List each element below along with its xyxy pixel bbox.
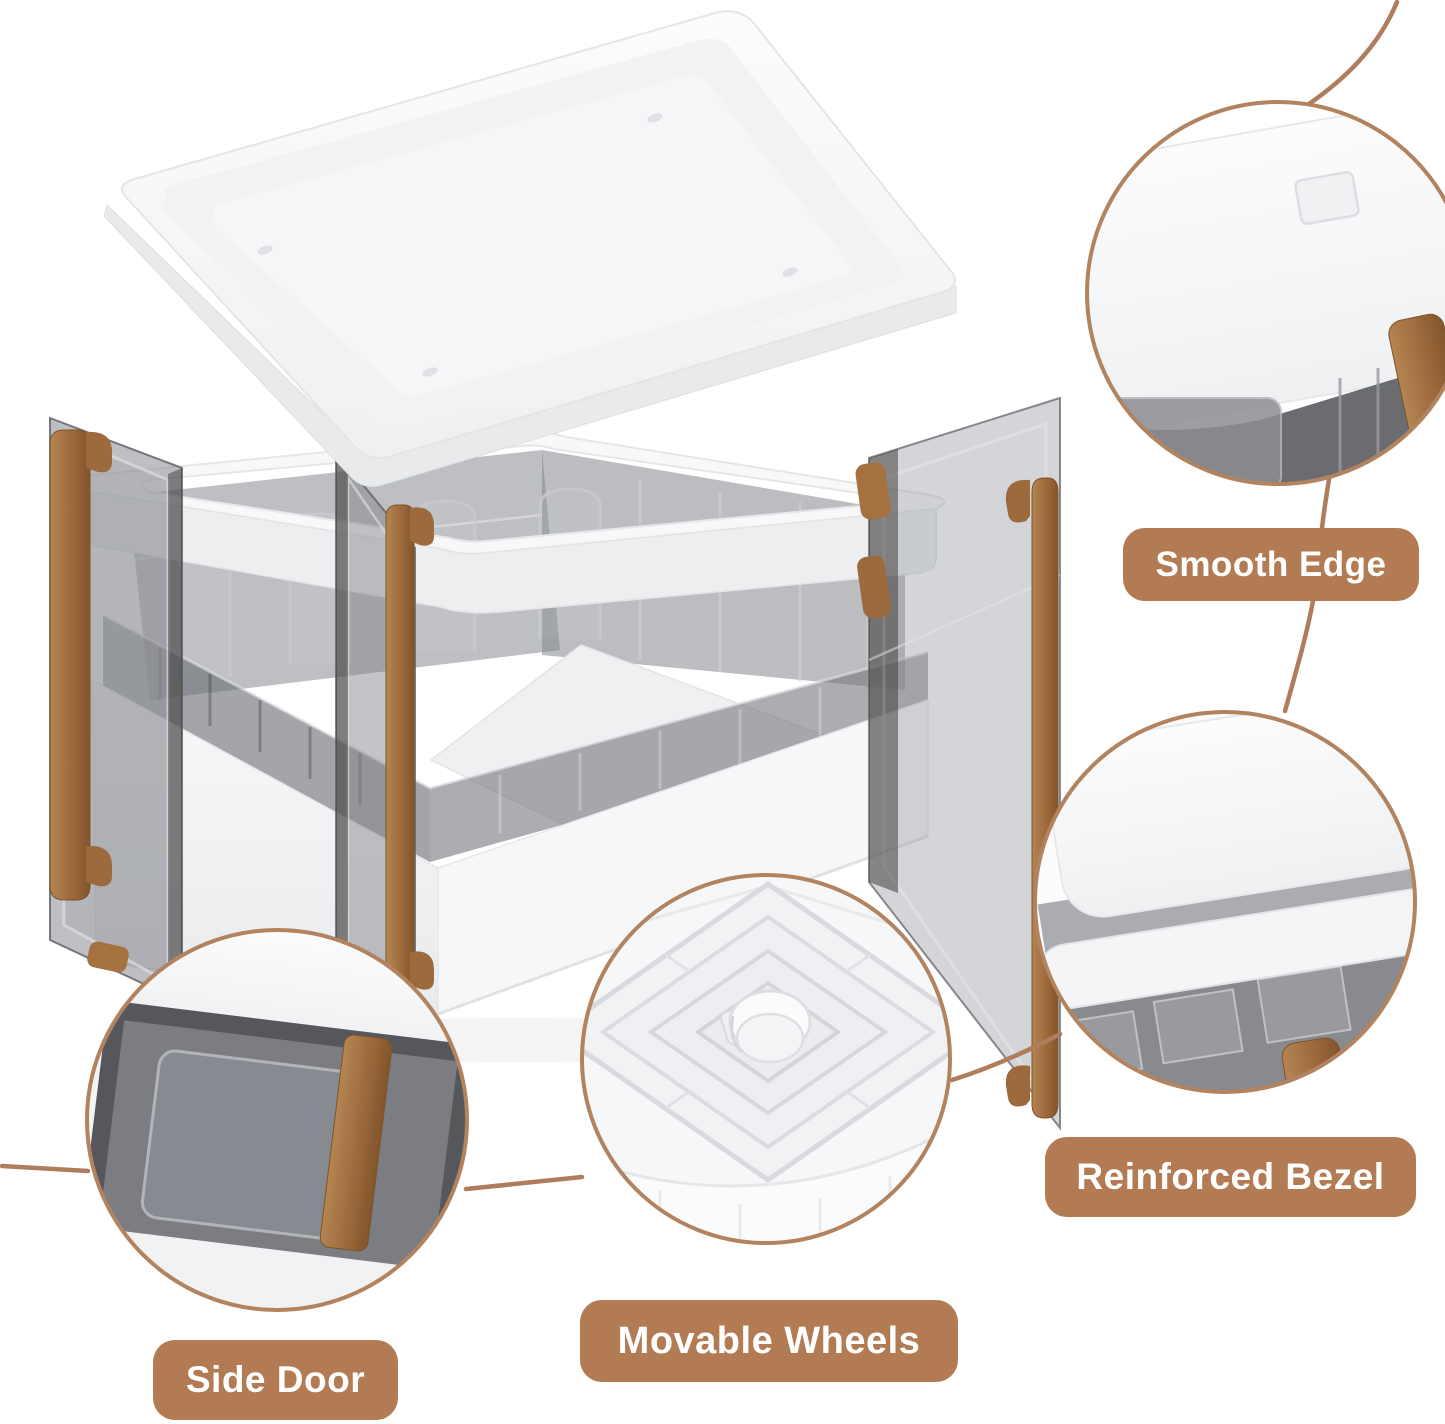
left-door-handle (50, 430, 90, 900)
front-door-hook-bottom (410, 951, 434, 989)
callout-circle-smooth-edge (1052, 91, 1445, 500)
box-lid (104, 11, 956, 486)
front-door-handle (386, 505, 414, 1005)
left-side-door (50, 418, 182, 1002)
callout-circle-reinforced-bezel (1023, 687, 1445, 1164)
right-door-handle (1032, 478, 1058, 1118)
callout-label-smooth-edge: Smooth Edge (1123, 528, 1419, 601)
front-door-hook-top (410, 507, 434, 545)
product-feature-image: Smooth Edge Reinforced Bezel Movable Whe… (0, 0, 1445, 1424)
left-door-hook-top (86, 432, 112, 472)
right-door-hook-top (1006, 480, 1030, 523)
callout-label-movable-wheels: Movable Wheels (580, 1300, 958, 1382)
callout-label-side-door: Side Door (153, 1340, 398, 1420)
right-door-hook-bottom (1006, 1065, 1030, 1106)
callout-label-reinforced-bezel: Reinforced Bezel (1045, 1137, 1416, 1217)
